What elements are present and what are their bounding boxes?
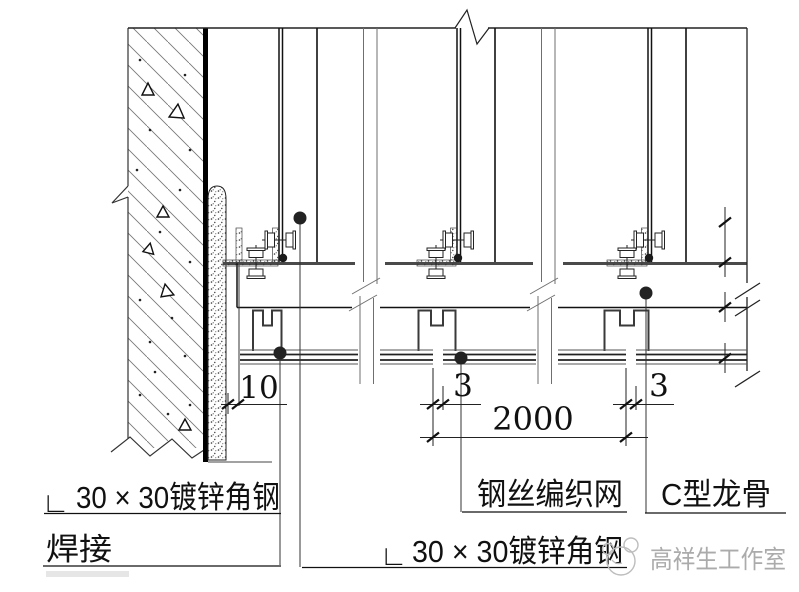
dim-mesh-gap-left: 3: [453, 368, 473, 404]
hanger-channel-2: [419, 311, 456, 352]
break-line-pair-1: [349, 28, 380, 384]
hanger-channel-1: [253, 311, 282, 352]
label-wire-mesh: 钢丝编织网: [477, 477, 623, 512]
dim-mesh-gap-right: 3: [649, 368, 669, 404]
wall-left-edge: [112, 28, 128, 441]
reference-dots: [274, 212, 653, 365]
label-angle-steel-left: 30 × 30镀锌角钢: [76, 480, 280, 515]
label-angle-steel-bottom: 30 × 30镀锌角钢: [412, 534, 623, 569]
weld-dots: [279, 254, 653, 262]
vertical-angle-2: [457, 28, 495, 263]
dim-wall-gap: 10: [239, 370, 278, 406]
vertical-angles: [279, 28, 686, 263]
c-keel-beam: [223, 28, 760, 387]
label-weld: 焊接: [46, 532, 112, 567]
drawing-canvas: 10 3 2000 3 ∟ 30 × 30镀锌角钢 焊接 钢丝编织网 C型龙骨 …: [0, 0, 799, 592]
vertical-angle-1: [279, 28, 317, 263]
watermark: 高祥生工作室: [603, 538, 787, 575]
right-border: [735, 28, 760, 387]
hanger-channels: [253, 311, 649, 352]
watermark-text: 高祥生工作室: [650, 546, 786, 574]
print-artifact: [46, 571, 129, 577]
ceiling-top-line: [128, 10, 747, 44]
wire-mesh-layers: [240, 350, 747, 364]
label-c-keel: C型龙骨: [661, 477, 771, 512]
wall-hatch: [128, 28, 204, 448]
break-line-pair-2: [527, 28, 558, 384]
wall-face-line: [203, 28, 208, 462]
hanger-channel-3: [605, 311, 649, 352]
wall-angle-leg: [236, 228, 242, 263]
sealant-strip: [208, 186, 226, 460]
angle-symbol: ∟: [380, 540, 407, 571]
vertical-angle-3: [648, 28, 686, 263]
dimension-ticks: [222, 218, 731, 443]
construction-detail-drawing: 10 3 2000 3 ∟ 30 × 30镀锌角钢 焊接 钢丝编织网 C型龙骨 …: [0, 0, 799, 592]
dim-span: 2000: [492, 400, 573, 438]
